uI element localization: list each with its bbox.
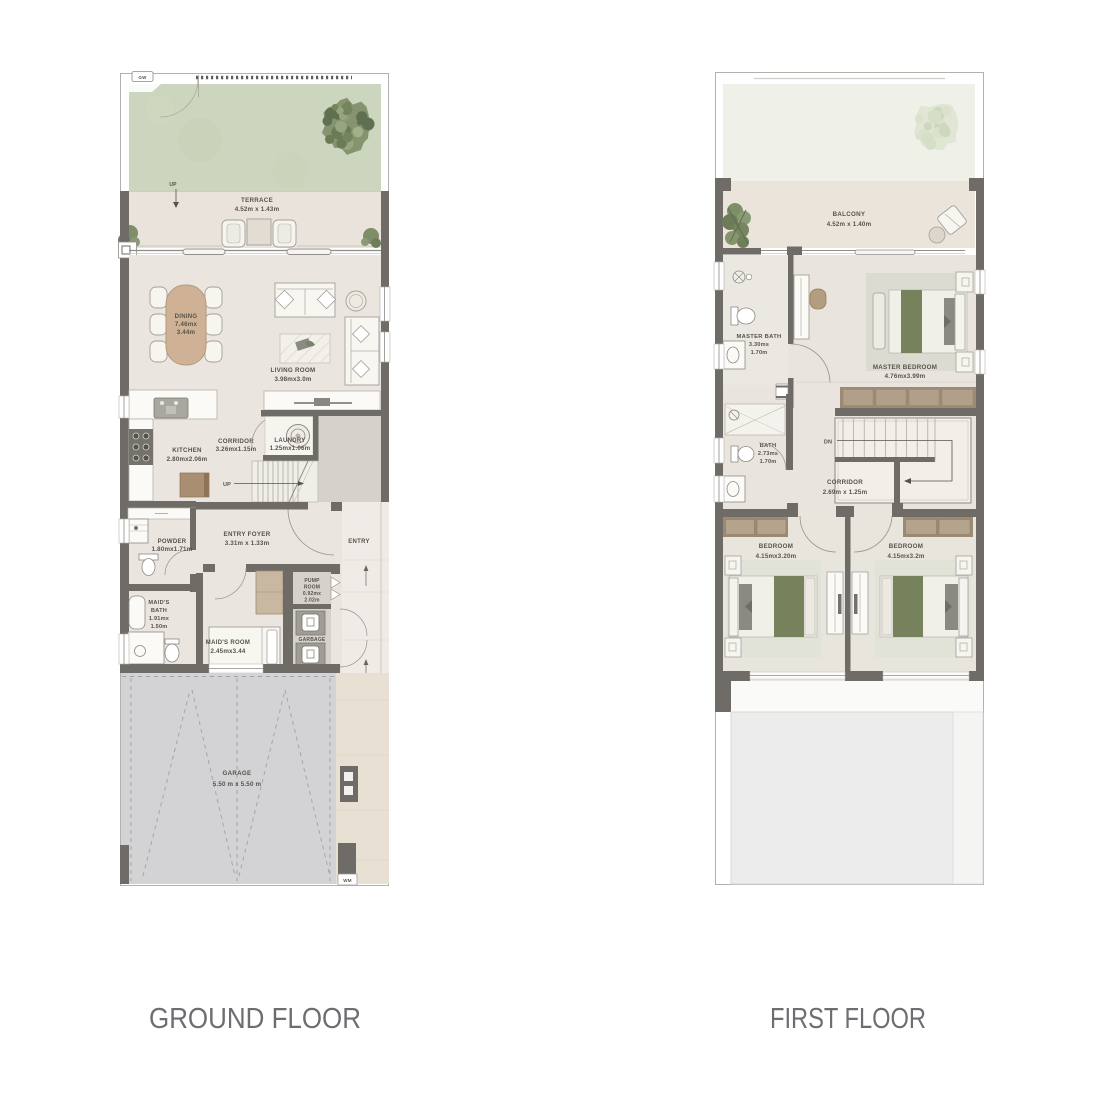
svg-text:MAID'S ROOM: MAID'S ROOM bbox=[206, 640, 250, 646]
svg-text:BATH: BATH bbox=[760, 443, 777, 449]
svg-text:GARAGE: GARAGE bbox=[223, 770, 252, 777]
svg-text:5.50 m x 5.50 m: 5.50 m x 5.50 m bbox=[213, 781, 262, 788]
svg-text:TERRACE: TERRACE bbox=[241, 197, 273, 204]
svg-text:LAUNDRY: LAUNDRY bbox=[274, 438, 305, 444]
svg-text:4.52m x 1.43m: 4.52m x 1.43m bbox=[235, 206, 280, 213]
svg-text:MASTER BEDROOM: MASTER BEDROOM bbox=[873, 364, 937, 371]
svg-text:2.80mx2.06m: 2.80mx2.06m bbox=[167, 456, 208, 463]
svg-text:3.31m x 1.33m: 3.31m x 1.33m bbox=[225, 540, 270, 547]
svg-text:4.52m x 1.40m: 4.52m x 1.40m bbox=[827, 221, 872, 228]
svg-text:UP: UP bbox=[169, 182, 177, 188]
svg-text:BEDROOM: BEDROOM bbox=[889, 543, 923, 550]
svg-text:MASTER BATH: MASTER BATH bbox=[736, 334, 781, 340]
svg-text:2.02m: 2.02m bbox=[304, 598, 320, 604]
svg-text:1.70m: 1.70m bbox=[751, 350, 768, 356]
svg-text:4.76mx3.99m: 4.76mx3.99m bbox=[885, 373, 926, 380]
svg-text:BATH: BATH bbox=[151, 608, 167, 614]
svg-text:UP: UP bbox=[223, 482, 231, 488]
svg-text:1.91mx: 1.91mx bbox=[149, 616, 170, 622]
svg-text:1.80mx1.71m: 1.80mx1.71m bbox=[152, 546, 193, 553]
svg-text:7.46mx: 7.46mx bbox=[175, 321, 198, 328]
svg-text:DN: DN bbox=[824, 440, 832, 446]
svg-text:2.69m x 1.25m: 2.69m x 1.25m bbox=[823, 489, 868, 496]
svg-text:CORRIDOR: CORRIDOR bbox=[218, 438, 254, 445]
svg-text:3.98mx3.0m: 3.98mx3.0m bbox=[274, 376, 311, 383]
svg-text:MAID'S: MAID'S bbox=[148, 600, 169, 606]
svg-text:ROOM: ROOM bbox=[304, 585, 320, 591]
svg-text:1.70m: 1.70m bbox=[760, 459, 777, 465]
svg-text:POWDER: POWDER bbox=[158, 539, 187, 545]
svg-text:WM: WM bbox=[343, 878, 351, 883]
svg-text:BALCONY: BALCONY bbox=[833, 211, 866, 218]
svg-text:PUMP: PUMP bbox=[304, 578, 320, 584]
svg-text:2.45mx3.44: 2.45mx3.44 bbox=[210, 648, 245, 655]
svg-text:ENTRY FOYER: ENTRY FOYER bbox=[224, 531, 271, 538]
svg-text:3.26mx1.15m: 3.26mx1.15m bbox=[216, 446, 257, 453]
svg-text:GARBAGE: GARBAGE bbox=[299, 637, 326, 643]
svg-text:1.50m: 1.50m bbox=[151, 624, 168, 630]
svg-text:KITCHEN: KITCHEN bbox=[172, 447, 202, 454]
svg-text:2.73ms: 2.73ms bbox=[758, 451, 778, 457]
svg-text:FIRST FLOOR: FIRST FLOOR bbox=[770, 1003, 926, 1035]
svg-text:1.25mx1.06m: 1.25mx1.06m bbox=[270, 445, 311, 452]
svg-text:DINING: DINING bbox=[175, 314, 198, 320]
svg-text:4.15mx3.2m: 4.15mx3.2m bbox=[887, 553, 924, 560]
svg-text:ENTRY: ENTRY bbox=[348, 539, 370, 545]
svg-text:0.92mx: 0.92mx bbox=[303, 591, 321, 597]
svg-text:3.30ms: 3.30ms bbox=[749, 342, 769, 348]
svg-text:CORRIDOR: CORRIDOR bbox=[827, 479, 863, 486]
svg-text:3.44m: 3.44m bbox=[177, 329, 196, 336]
svg-text:4.15mx3.20m: 4.15mx3.20m bbox=[756, 553, 797, 560]
svg-text:GROUND FLOOR: GROUND FLOOR bbox=[149, 1003, 361, 1035]
svg-text:LIVING ROOM: LIVING ROOM bbox=[271, 367, 316, 374]
svg-text:GW: GW bbox=[138, 75, 147, 80]
svg-text:BEDROOM: BEDROOM bbox=[759, 543, 793, 550]
